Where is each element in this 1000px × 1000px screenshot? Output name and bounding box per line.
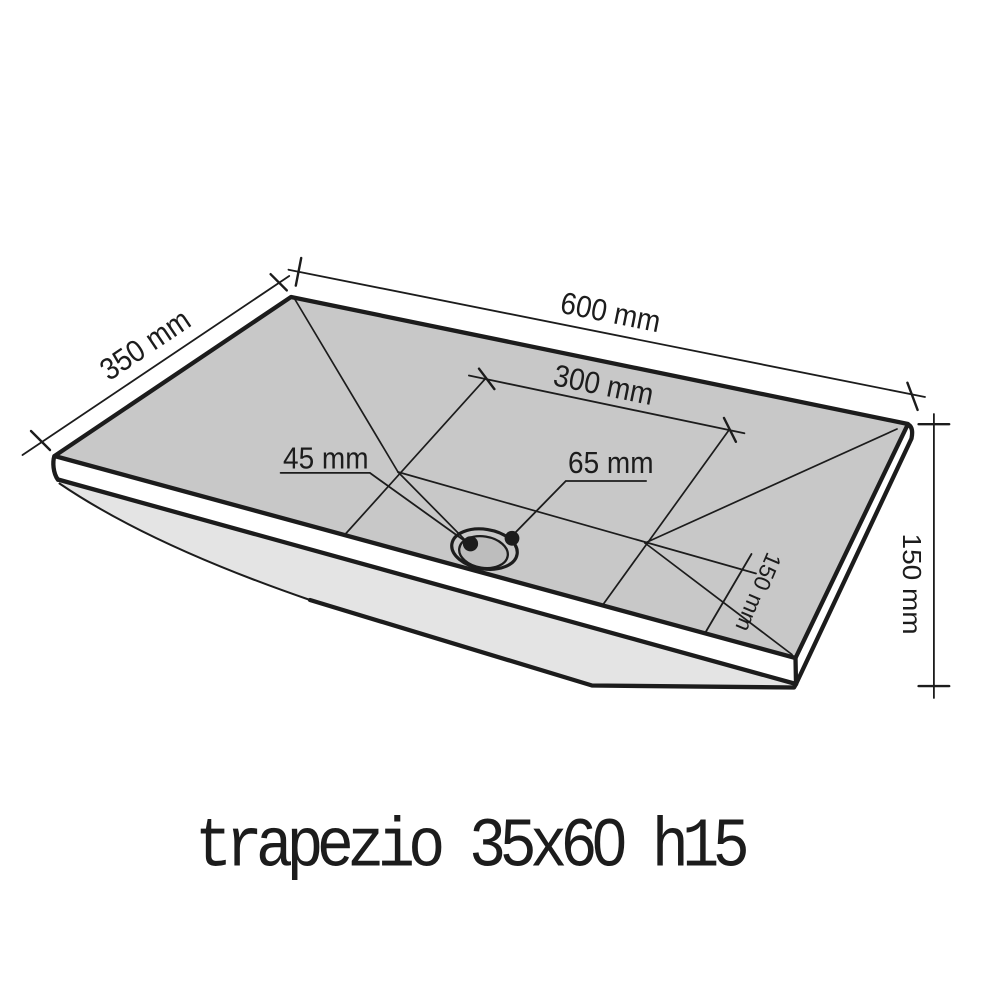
svg-text:45 mm: 45 mm [283,441,369,476]
svg-text:150 mm: 150 mm [897,534,926,635]
svg-text:trapezio 35x60 h15: trapezio 35x60 h15 [195,807,747,886]
svg-text:65 mm: 65 mm [568,446,654,481]
